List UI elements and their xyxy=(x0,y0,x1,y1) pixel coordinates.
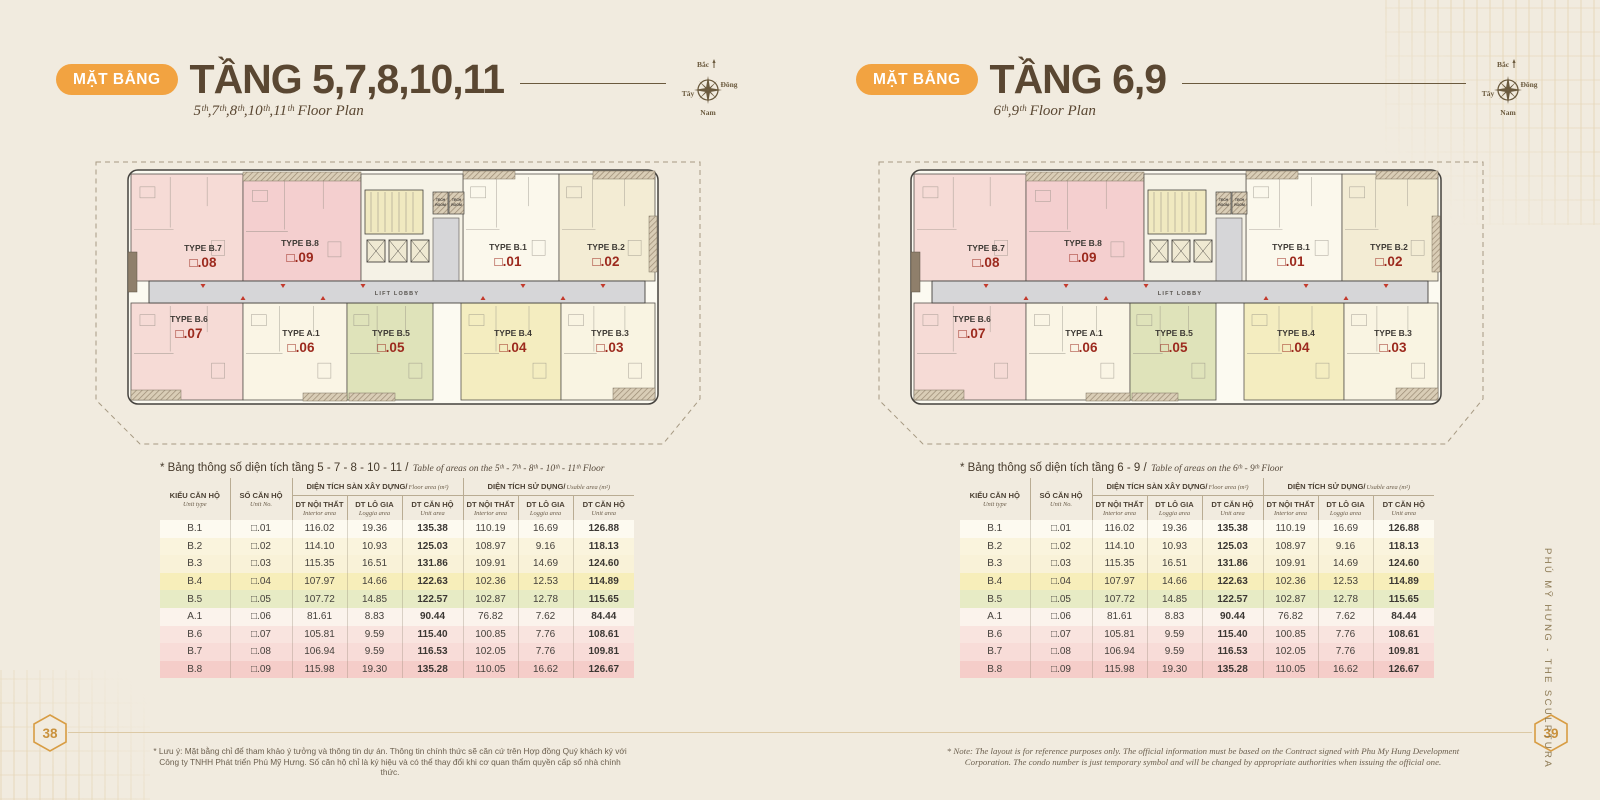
table-cell: B.6 xyxy=(160,626,230,644)
unit-number-label: □.09 xyxy=(287,250,314,265)
unit-number-label: □.05 xyxy=(1161,340,1188,355)
table-cell: □.09 xyxy=(230,661,292,679)
table-cell: 109.91 xyxy=(463,555,518,573)
table-row: B.8□.09115.9819.30135.28110.0516.62126.6… xyxy=(960,661,1434,679)
table-row: B.3□.03115.3516.51131.86109.9114.69124.6… xyxy=(160,555,634,573)
svg-text:Nam: Nam xyxy=(700,108,716,117)
table-cell: 107.72 xyxy=(292,590,347,608)
table-cell: 90.44 xyxy=(1202,608,1263,626)
table-row: B.1□.01116.0219.36135.38110.1916.69126.8… xyxy=(960,520,1434,538)
table-cell: 135.38 xyxy=(1202,520,1263,538)
unit-number-label: □.07 xyxy=(959,326,986,341)
table-cell: 100.85 xyxy=(1263,626,1318,644)
table-cell: □.06 xyxy=(230,608,292,626)
table-cell: □.01 xyxy=(230,520,292,538)
table-cell: 116.53 xyxy=(402,643,463,661)
group-header: DIỆN TÍCH SỬ DỤNG/Usable area (m²) xyxy=(463,478,634,496)
mat-bang-badge: MẶT BẰNG xyxy=(856,64,978,95)
table-cell: 110.19 xyxy=(463,520,518,538)
table-cell: 14.85 xyxy=(347,590,402,608)
unit-number-label: □.01 xyxy=(495,254,522,269)
area-table: KIỂU CĂN HỘUnit typeSỐ CĂN HỘUnit No.DIỆ… xyxy=(160,478,634,678)
unit-number-label: □.07 xyxy=(176,326,203,341)
table-cell: 16.62 xyxy=(518,661,573,679)
table-cell: 131.86 xyxy=(402,555,463,573)
table-row: B.8□.09115.9819.30135.28110.0516.62126.6… xyxy=(160,661,634,679)
table-cell: □.03 xyxy=(1030,555,1092,573)
unit-number-label: □.04 xyxy=(1283,340,1310,355)
table-cell: B.2 xyxy=(960,538,1030,556)
title-rule xyxy=(1182,83,1466,84)
svg-text:Đông: Đông xyxy=(720,80,737,89)
table-cell: 102.36 xyxy=(1263,573,1318,591)
unit-type-label: TYPE B.6 xyxy=(953,314,991,324)
svg-text:38: 38 xyxy=(42,726,58,741)
table-cell: 135.28 xyxy=(402,661,463,679)
footnote: * Lưu ý: Mặt bằng chỉ để tham khảo ý tưở… xyxy=(150,746,630,778)
table-cell: 114.10 xyxy=(1092,538,1147,556)
table-cell: 106.94 xyxy=(1092,643,1147,661)
table-cell: B.5 xyxy=(960,590,1030,608)
table-title: * Bảng thông số diện tích tầng 6 - 9 / T… xyxy=(960,458,1283,476)
table-row: B.2□.02114.1010.93125.03108.979.16118.13 xyxy=(160,538,634,556)
table-cell: 107.72 xyxy=(1092,590,1147,608)
group-header: DIỆN TÍCH SỬ DỤNG/Usable area (m²) xyxy=(1263,478,1434,496)
table-cell: 102.05 xyxy=(463,643,518,661)
table-cell: □.06 xyxy=(1030,608,1092,626)
table-cell: 115.40 xyxy=(1202,626,1263,644)
table-cell: 76.82 xyxy=(1263,608,1318,626)
table-cell: 115.98 xyxy=(1092,661,1147,679)
table-row: B.6□.07105.819.59115.40100.857.76108.61 xyxy=(160,626,634,644)
table-cell: 124.60 xyxy=(573,555,634,573)
floor-plan: TECHROOMTECHROOMLIFT LOBBYTYPE B.7□.08TY… xyxy=(876,156,1488,448)
table-cell: 9.59 xyxy=(347,643,402,661)
unit-type-label: TYPE B.8 xyxy=(281,238,319,248)
table-cell: 76.82 xyxy=(463,608,518,626)
table-cell: 115.35 xyxy=(292,555,347,573)
table-cell: 125.03 xyxy=(402,538,463,556)
unit-number-label: □.06 xyxy=(1071,340,1098,355)
table-cell: □.04 xyxy=(230,573,292,591)
table-cell: 126.88 xyxy=(573,520,634,538)
table-row: A.1□.0681.618.8390.4476.827.6284.44 xyxy=(160,608,634,626)
table-cell: 7.76 xyxy=(1318,643,1373,661)
table-cell: 90.44 xyxy=(402,608,463,626)
unit-type-label: TYPE B.2 xyxy=(587,242,625,252)
table-cell: 81.61 xyxy=(292,608,347,626)
unit-number-label: □.02 xyxy=(593,254,620,269)
table-cell: 114.89 xyxy=(1373,573,1434,591)
page-subtitle: 5ᵗʰ,7ᵗʰ,8ᵗʰ,10ᵗʰ,11ᵗʰ Floor Plan xyxy=(190,103,670,120)
table-cell: 12.53 xyxy=(518,573,573,591)
table-title-vi: * Bảng thông số diện tích tầng 6 - 9 / xyxy=(960,462,1147,474)
table-cell: 81.61 xyxy=(1092,608,1147,626)
lift-lobby-label: LIFT LOBBY xyxy=(375,291,419,297)
unit-type-label: TYPE B.3 xyxy=(591,328,629,338)
unit-type-label: TYPE B.7 xyxy=(184,243,222,253)
table-cell: 14.66 xyxy=(1147,573,1202,591)
table-cell: 108.97 xyxy=(463,538,518,556)
svg-text:ROOM: ROOM xyxy=(451,203,462,207)
sub-header: DT NỘI THẤTInterior area xyxy=(1092,496,1147,521)
table-cell: 7.76 xyxy=(1318,626,1373,644)
svg-text:Tây: Tây xyxy=(682,89,695,98)
column-header: KIỂU CĂN HỘUnit type xyxy=(960,478,1030,520)
unit-number-label: □.08 xyxy=(190,255,217,270)
unit-type-label: TYPE B.1 xyxy=(1272,242,1310,252)
brand-vertical-text: PHÚ MỸ HƯNG - THE SCULPTURA xyxy=(1542,548,1553,718)
table-cell: A.1 xyxy=(160,608,230,626)
unit-number-label: □.04 xyxy=(500,340,527,355)
table-cell: □.08 xyxy=(230,643,292,661)
table-cell: 114.89 xyxy=(573,573,634,591)
unit-number-label: □.02 xyxy=(1376,254,1403,269)
table-cell: □.05 xyxy=(230,590,292,608)
table-cell: 16.51 xyxy=(1147,555,1202,573)
table-cell: B.1 xyxy=(160,520,230,538)
svg-text:ROOM: ROOM xyxy=(1218,203,1229,207)
table-cell: 109.91 xyxy=(1263,555,1318,573)
plan-header: MẶT BẰNG TẦNG 5,7,8,10,11 5ᵗʰ,7ᵗʰ,8ᵗʰ,10… xyxy=(56,58,670,120)
table-cell: 12.78 xyxy=(1318,590,1373,608)
table-cell: 115.65 xyxy=(573,590,634,608)
mat-bang-badge: MẶT BẰNG xyxy=(56,64,178,95)
table-cell: 14.85 xyxy=(1147,590,1202,608)
svg-text:TECH: TECH xyxy=(452,198,462,202)
table-row: B.1□.01116.0219.36135.38110.1916.69126.8… xyxy=(160,520,634,538)
unit-type-label: TYPE B.1 xyxy=(489,242,527,252)
table-cell: B.5 xyxy=(160,590,230,608)
table-cell: 84.44 xyxy=(1373,608,1434,626)
table-cell: 10.93 xyxy=(1147,538,1202,556)
page-left: MẶT BẰNG TẦNG 5,7,8,10,11 5ᵗʰ,7ᵗʰ,8ᵗʰ,10… xyxy=(0,0,800,800)
table-cell: 116.53 xyxy=(1202,643,1263,661)
table-cell: □.02 xyxy=(230,538,292,556)
unit-type-label: TYPE B.8 xyxy=(1064,238,1102,248)
table-cell: 125.03 xyxy=(1202,538,1263,556)
table-cell: 106.94 xyxy=(292,643,347,661)
table-cell: 135.28 xyxy=(1202,661,1263,679)
compass-icon: Bắc Đông Tây Nam xyxy=(676,56,740,120)
sub-header: DT CĂN HỘUnit area xyxy=(402,496,463,521)
table-row: B.7□.08106.949.59116.53102.057.76109.81 xyxy=(160,643,634,661)
page-title: TẦNG 6,9 xyxy=(990,58,1167,100)
table-cell: 14.69 xyxy=(1318,555,1373,573)
plan-header: MẶT BẰNG TẦNG 6,9 6ᵗʰ,9ᵗʰ Floor Plan xyxy=(856,58,1470,120)
unit-type-label: TYPE B.5 xyxy=(372,328,410,338)
table-cell: 115.40 xyxy=(402,626,463,644)
table-cell: 9.59 xyxy=(347,626,402,644)
table-cell: □.05 xyxy=(1030,590,1092,608)
table-cell: 122.63 xyxy=(402,573,463,591)
table-cell: 16.51 xyxy=(347,555,402,573)
table-cell: 19.30 xyxy=(1147,661,1202,679)
table-cell: 10.93 xyxy=(347,538,402,556)
column-header: KIỂU CĂN HỘUnit type xyxy=(160,478,230,520)
table-cell: 122.57 xyxy=(1202,590,1263,608)
table-cell: B.7 xyxy=(960,643,1030,661)
table-cell: 105.81 xyxy=(1092,626,1147,644)
table-row: B.5□.05107.7214.85122.57102.8712.78115.6… xyxy=(960,590,1434,608)
svg-text:TECH: TECH xyxy=(436,198,446,202)
table-cell: □.07 xyxy=(230,626,292,644)
unit-type-label: TYPE B.5 xyxy=(1155,328,1193,338)
table-cell: 116.02 xyxy=(1092,520,1147,538)
column-header: SỐ CĂN HỘUnit No. xyxy=(1030,478,1092,520)
unit-type-label: TYPE B.4 xyxy=(494,328,532,338)
table-cell: B.2 xyxy=(160,538,230,556)
table-cell: 115.65 xyxy=(1373,590,1434,608)
table-cell: □.09 xyxy=(1030,661,1092,679)
unit-type-label: TYPE B.7 xyxy=(967,243,1005,253)
svg-text:Đông: Đông xyxy=(1520,80,1537,89)
page-title: TẦNG 5,7,8,10,11 xyxy=(190,58,504,100)
table-cell: B.1 xyxy=(960,520,1030,538)
svg-text:TECH: TECH xyxy=(1219,198,1229,202)
table-row: B.6□.07105.819.59115.40100.857.76108.61 xyxy=(960,626,1434,644)
table-cell: 14.66 xyxy=(347,573,402,591)
sub-header: DT CĂN HỘUnit area xyxy=(1373,496,1434,521)
table-cell: 126.67 xyxy=(1373,661,1434,679)
table-cell: B.8 xyxy=(960,661,1030,679)
table-cell: 105.81 xyxy=(292,626,347,644)
table-cell: 19.36 xyxy=(347,520,402,538)
unit-number-label: □.01 xyxy=(1278,254,1305,269)
page-subtitle: 6ᵗʰ,9ᵗʰ Floor Plan xyxy=(990,103,1470,120)
table-cell: 9.59 xyxy=(1147,626,1202,644)
table-cell: □.01 xyxy=(1030,520,1092,538)
table-cell: B.3 xyxy=(160,555,230,573)
unit-number-label: □.03 xyxy=(1380,340,1407,355)
svg-text:TECH: TECH xyxy=(1235,198,1245,202)
area-table-wrap: KIỂU CĂN HỘUnit typeSỐ CĂN HỘUnit No.DIỆ… xyxy=(960,478,1434,678)
group-header: DIỆN TÍCH SÀN XÂY DỰNG/Floor area (m²) xyxy=(292,478,463,496)
svg-text:Tây: Tây xyxy=(1482,89,1495,98)
table-cell: 108.61 xyxy=(573,626,634,644)
sub-header: DT LÔ GIALoggia area xyxy=(347,496,402,521)
column-header: SỐ CĂN HỘUnit No. xyxy=(230,478,292,520)
unit-type-label: TYPE A.1 xyxy=(1065,328,1103,338)
title-rule xyxy=(520,83,666,84)
table-cell: 126.88 xyxy=(1373,520,1434,538)
unit-number-label: □.08 xyxy=(973,255,1000,270)
table-cell: 126.67 xyxy=(573,661,634,679)
floor-plan: TECHROOMTECHROOMLIFT LOBBYTYPE B.7□.08TY… xyxy=(93,156,705,448)
table-cell: 12.53 xyxy=(1318,573,1373,591)
sub-header: DT LÔ GIALoggia area xyxy=(1318,496,1373,521)
table-title-vi: * Bảng thông số diện tích tầng 5 - 7 - 8… xyxy=(160,462,408,474)
table-cell: 122.57 xyxy=(402,590,463,608)
svg-text:ROOM: ROOM xyxy=(1234,203,1245,207)
table-cell: 118.13 xyxy=(573,538,634,556)
table-cell: 115.35 xyxy=(1092,555,1147,573)
table-cell: 108.61 xyxy=(1373,626,1434,644)
table-cell: 109.81 xyxy=(1373,643,1434,661)
unit-type-label: TYPE B.3 xyxy=(1374,328,1412,338)
unit-type-label: TYPE B.6 xyxy=(170,314,208,324)
group-header: DIỆN TÍCH SÀN XÂY DỰNG/Floor area (m²) xyxy=(1092,478,1263,496)
table-cell: 7.76 xyxy=(518,643,573,661)
svg-text:ROOM: ROOM xyxy=(435,203,446,207)
table-cell: 110.05 xyxy=(1263,661,1318,679)
table-cell: 12.78 xyxy=(518,590,573,608)
table-row: B.2□.02114.1010.93125.03108.979.16118.13 xyxy=(960,538,1434,556)
table-cell: 135.38 xyxy=(402,520,463,538)
sub-header: DT LÔ GIALoggia area xyxy=(1147,496,1202,521)
table-cell: 19.36 xyxy=(1147,520,1202,538)
sub-header: DT CĂN HỘUnit area xyxy=(573,496,634,521)
area-table-wrap: KIỂU CĂN HỘUnit typeSỐ CĂN HỘUnit No.DIỆ… xyxy=(160,478,634,678)
table-row: B.3□.03115.3516.51131.86109.9114.69124.6… xyxy=(960,555,1434,573)
table-title-en: Table of areas on the 6ᵗʰ - 9ᵗʰ Floor xyxy=(1151,464,1283,474)
table-cell: □.04 xyxy=(1030,573,1092,591)
table-cell: 102.36 xyxy=(463,573,518,591)
table-cell: 7.76 xyxy=(518,626,573,644)
table-cell: □.08 xyxy=(1030,643,1092,661)
unit-number-label: □.06 xyxy=(288,340,315,355)
unit-number-label: □.03 xyxy=(597,340,624,355)
table-row: A.1□.0681.618.8390.4476.827.6284.44 xyxy=(960,608,1434,626)
table-cell: 107.97 xyxy=(292,573,347,591)
table-cell: B.7 xyxy=(160,643,230,661)
unit-number-label: □.05 xyxy=(378,340,405,355)
table-row: B.5□.05107.7214.85122.57102.8712.78115.6… xyxy=(160,590,634,608)
table-cell: 116.02 xyxy=(292,520,347,538)
table-cell: □.02 xyxy=(1030,538,1092,556)
unit-type-label: TYPE A.1 xyxy=(282,328,320,338)
table-cell: 9.16 xyxy=(518,538,573,556)
table-cell: 16.62 xyxy=(1318,661,1373,679)
table-cell: □.03 xyxy=(230,555,292,573)
table-cell: 7.62 xyxy=(518,608,573,626)
table-cell: 108.97 xyxy=(1263,538,1318,556)
table-cell: 122.63 xyxy=(1202,573,1263,591)
table-cell: 84.44 xyxy=(573,608,634,626)
table-cell: B.8 xyxy=(160,661,230,679)
table-cell: 100.85 xyxy=(463,626,518,644)
table-cell: 102.87 xyxy=(463,590,518,608)
table-cell: 9.59 xyxy=(1147,643,1202,661)
sub-header: DT NỘI THẤTInterior area xyxy=(1263,496,1318,521)
table-cell: 102.05 xyxy=(1263,643,1318,661)
title-wrap: TẦNG 5,7,8,10,11 5ᵗʰ,7ᵗʰ,8ᵗʰ,10ᵗʰ,11ᵗʰ F… xyxy=(190,58,670,120)
table-cell: 118.13 xyxy=(1373,538,1434,556)
table-cell: 115.98 xyxy=(292,661,347,679)
table-cell: 9.16 xyxy=(1318,538,1373,556)
table-cell: 102.87 xyxy=(1263,590,1318,608)
table-cell: 110.05 xyxy=(463,661,518,679)
table-title-en: Table of areas on the 5ᵗʰ - 7ᵗʰ - 8ᵗʰ - … xyxy=(413,464,605,474)
table-cell: □.07 xyxy=(1030,626,1092,644)
table-title: * Bảng thông số diện tích tầng 5 - 7 - 8… xyxy=(160,458,605,476)
table-row: B.7□.08106.949.59116.53102.057.76109.81 xyxy=(960,643,1434,661)
table-cell: A.1 xyxy=(960,608,1030,626)
table-cell: B.4 xyxy=(160,573,230,591)
table-cell: 7.62 xyxy=(1318,608,1373,626)
svg-text:Nam: Nam xyxy=(1500,108,1516,117)
compass-icon: Bắc Đông Tây Nam xyxy=(1476,56,1540,120)
table-cell: 107.97 xyxy=(1092,573,1147,591)
table-cell: 110.19 xyxy=(1263,520,1318,538)
sub-header: DT LÔ GIALoggia area xyxy=(518,496,573,521)
lift-lobby-label: LIFT LOBBY xyxy=(1158,291,1202,297)
table-cell: 8.83 xyxy=(347,608,402,626)
sub-header: DT NỘI THẤTInterior area xyxy=(292,496,347,521)
page-number-hexagon: 38 xyxy=(32,713,68,753)
table-row: B.4□.04107.9714.66122.63102.3612.53114.8… xyxy=(960,573,1434,591)
table-cell: 16.69 xyxy=(1318,520,1373,538)
unit-type-label: TYPE B.2 xyxy=(1370,242,1408,252)
table-cell: B.6 xyxy=(960,626,1030,644)
footnote: * Note: The layout is for reference purp… xyxy=(938,746,1468,767)
table-cell: 114.10 xyxy=(292,538,347,556)
table-cell: 14.69 xyxy=(518,555,573,573)
svg-text:Bắc: Bắc xyxy=(697,60,710,69)
table-cell: B.3 xyxy=(960,555,1030,573)
area-table: KIỂU CĂN HỘUnit typeSỐ CĂN HỘUnit No.DIỆ… xyxy=(960,478,1434,678)
page-right: MẶT BẰNG TẦNG 6,9 6ᵗʰ,9ᵗʰ Floor Plan Bắc… xyxy=(800,0,1600,800)
table-cell: 124.60 xyxy=(1373,555,1434,573)
table-cell: B.4 xyxy=(960,573,1030,591)
unit-number-label: □.09 xyxy=(1070,250,1097,265)
table-cell: 109.81 xyxy=(573,643,634,661)
unit-type-label: TYPE B.4 xyxy=(1277,328,1315,338)
svg-text:Bắc: Bắc xyxy=(1497,60,1510,69)
table-cell: 16.69 xyxy=(518,520,573,538)
sub-header: DT CĂN HỘUnit area xyxy=(1202,496,1263,521)
title-wrap: TẦNG 6,9 6ᵗʰ,9ᵗʰ Floor Plan xyxy=(990,58,1470,120)
table-cell: 131.86 xyxy=(1202,555,1263,573)
table-cell: 19.30 xyxy=(347,661,402,679)
table-row: B.4□.04107.9714.66122.63102.3612.53114.8… xyxy=(160,573,634,591)
table-cell: 8.83 xyxy=(1147,608,1202,626)
sub-header: DT NỘI THẤTInterior area xyxy=(463,496,518,521)
